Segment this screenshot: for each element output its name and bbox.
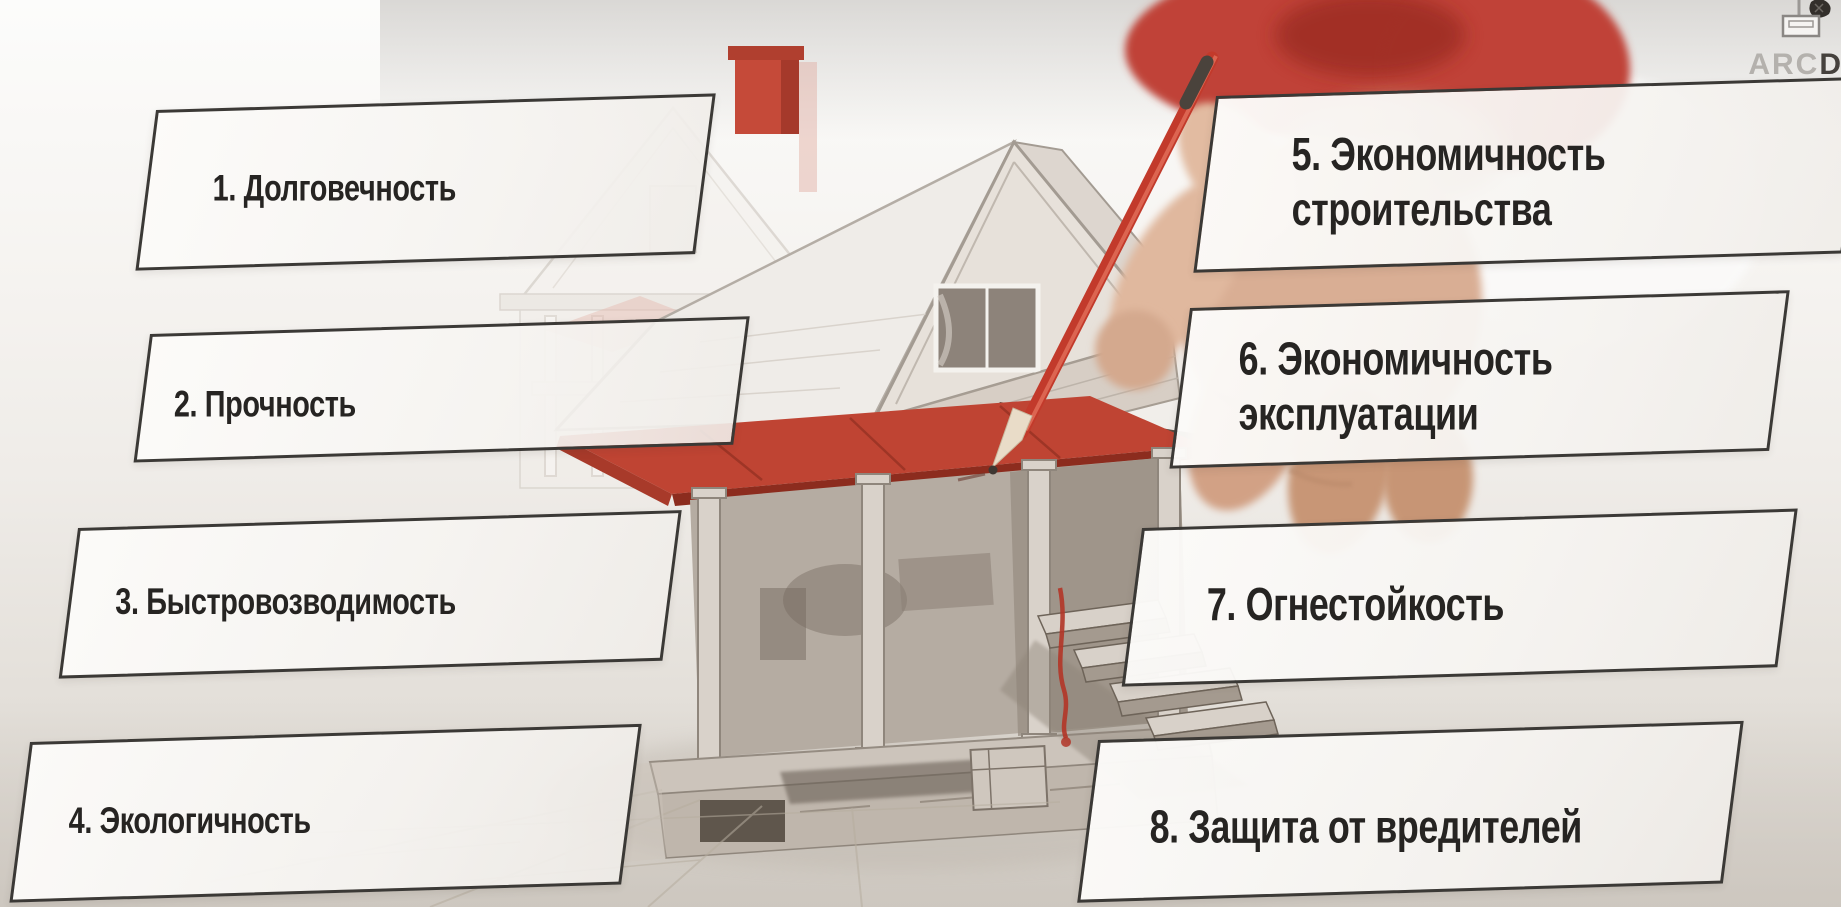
feature-label-line2: строительства — [1292, 183, 1552, 235]
feature-label: 5. Экономичность строительства — [1292, 127, 1729, 237]
feature-box-6-operation-economy: 6. Экономичность эксплуатации — [1169, 290, 1789, 468]
brand-text-light: ARC — [1748, 48, 1819, 81]
red-chimney — [728, 46, 817, 192]
infographic-canvas: ARCD 1. Долговечность 2. Прочность 3. Бы… — [0, 0, 1841, 907]
arcd-brand-text: ARCD — [1727, 50, 1841, 80]
feature-box-1-durability: 1. Долговечность — [135, 93, 715, 270]
gable-window — [936, 286, 1038, 370]
feature-label-line1: 6. Экономичность — [1239, 332, 1553, 384]
feature-box-4-eco-friendliness: 4. Экологичность — [9, 724, 641, 903]
feature-box-5-construction-economy: 5. Экономичность строительства — [1193, 77, 1841, 273]
feature-box-2-strength: 2. Прочность — [134, 316, 750, 462]
feature-box-8-pest-protection: 8. Защита от вредителей — [1077, 721, 1744, 903]
brand-text-dark: D — [1819, 48, 1841, 81]
red-drip-blob — [1061, 737, 1071, 747]
feature-label-line1: 5. Экономичность — [1292, 128, 1606, 180]
arcd-logo-icon — [1727, 0, 1841, 48]
feature-label-line2: эксплуатации — [1239, 388, 1479, 440]
feature-label: 1. Долговечность — [213, 166, 595, 210]
feature-label: 3. Быстровозводимость — [115, 580, 547, 624]
feature-box-3-fast-assembly: 3. Быстровозводимость — [59, 510, 682, 679]
feature-label: 2. Прочность — [174, 382, 614, 426]
feature-label: 8. Защита от вредителей — [1150, 800, 1602, 855]
feature-label: 4. Экологичность — [69, 799, 506, 843]
feature-box-7-fire-resistance: 7. Огнестойкость — [1122, 509, 1798, 687]
feature-label: 6. Экономичность эксплуатации — [1239, 331, 1659, 441]
feature-label: 7. Огнестойкость — [1207, 578, 1658, 633]
